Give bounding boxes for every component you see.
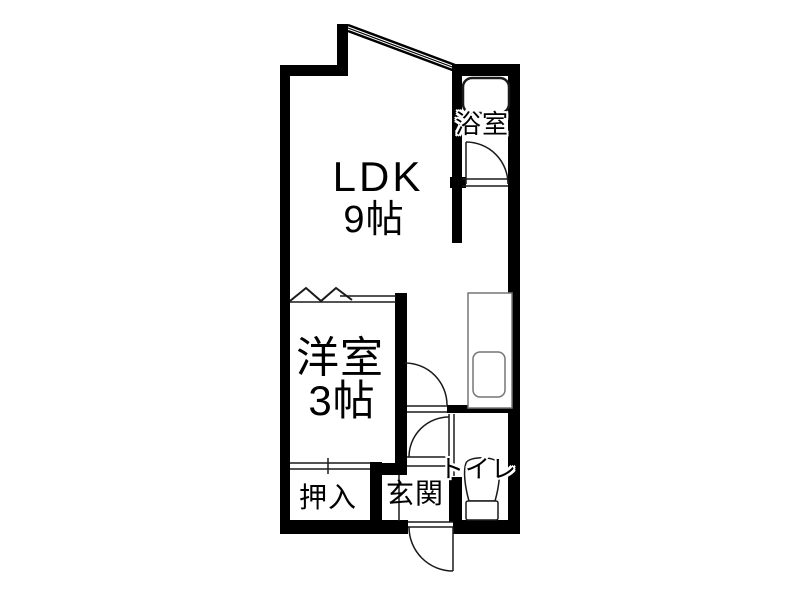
closet-label: 押入 — [299, 484, 357, 512]
wall-entry-top — [370, 463, 405, 475]
western-room-label: 洋室 — [296, 338, 384, 381]
wall-bottom-right — [453, 520, 520, 534]
ldk-label: LDK — [333, 156, 424, 198]
floor-plan-drawing — [0, 0, 800, 600]
bathroom-door — [466, 142, 508, 184]
ldk-size-label: 9帖 — [343, 201, 404, 239]
fixtures — [463, 78, 512, 520]
bathroom-door-arc — [466, 142, 508, 184]
wall-western-room-right — [395, 293, 407, 475]
ldk-door-arc — [405, 363, 447, 405]
entry-label: 玄関 — [386, 480, 444, 508]
wall-toilet-left-lower — [449, 477, 462, 522]
diagonal-window — [348, 25, 455, 71]
wall-left — [280, 65, 290, 534]
toilet-label: トイレ — [439, 458, 517, 483]
bathroom-label: 浴室 — [455, 111, 509, 137]
western-room-size-label: 3帖 — [308, 380, 375, 422]
wall-bottom-left — [280, 520, 408, 534]
kitchen-sink — [473, 352, 505, 397]
toilet-tank — [466, 501, 498, 520]
floor-plan: LDK 9帖 洋室 3帖 浴室 トイレ 押入 玄関 — [0, 0, 800, 600]
accordion-door-zigzag — [290, 288, 352, 301]
window-line-outer — [348, 25, 455, 65]
window-line-middle — [348, 28, 455, 68]
front-door — [409, 527, 453, 571]
window-line-inner — [348, 31, 455, 71]
ldk-door — [405, 363, 447, 405]
kitchen-counter — [468, 293, 512, 408]
toilet-door-arc — [409, 417, 449, 457]
wall-bathroom-left — [452, 76, 462, 243]
toilet-door — [409, 417, 449, 457]
wall-window-post — [337, 24, 348, 76]
bathtub — [463, 78, 509, 113]
front-door-arc — [409, 527, 453, 571]
